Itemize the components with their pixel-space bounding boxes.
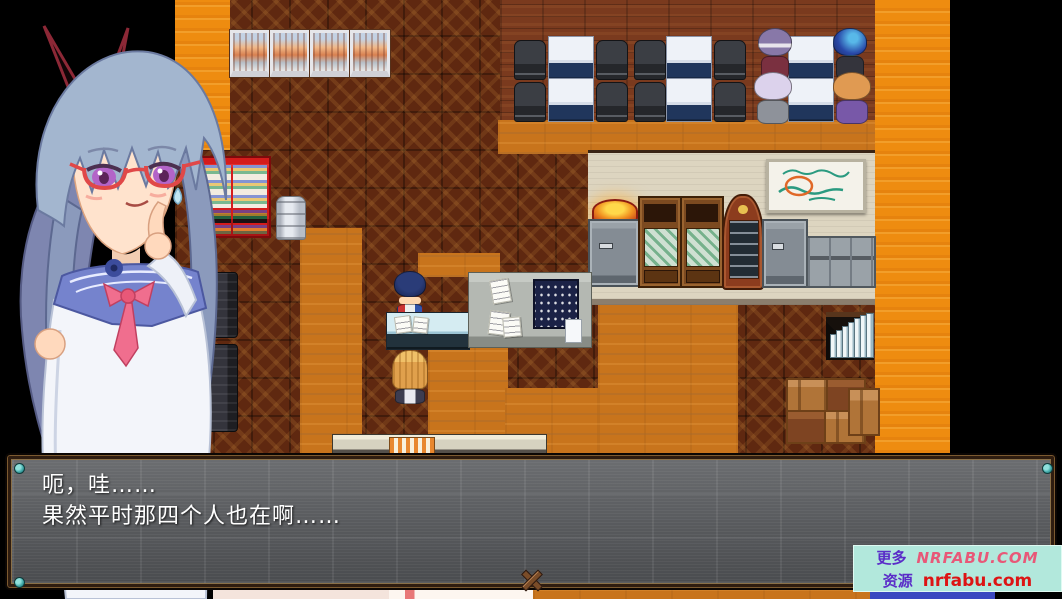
paper-sheet <box>412 316 429 333</box>
floor-orange-band <box>498 120 875 154</box>
office-room-wall <box>588 150 875 305</box>
game-map-viewport[interactable] <box>175 0 950 455</box>
cabinet-drawer <box>686 270 721 283</box>
window-icon <box>230 30 270 77</box>
watermark-row-1: 更多 NRFABU.COM <box>854 547 1061 568</box>
player-face <box>399 297 421 304</box>
continue-cursor-icon[interactable] <box>518 566 544 592</box>
sweat-drop <box>174 188 182 204</box>
npc-hair <box>833 72 871 100</box>
school-desk <box>548 78 594 122</box>
cabinet-drawer <box>644 270 679 283</box>
whiteboard-scribbles <box>769 162 863 210</box>
radiator-vent <box>389 437 435 454</box>
office-chair <box>514 40 546 80</box>
office-chair <box>514 82 546 122</box>
window-icon <box>270 30 310 77</box>
cardboard-box <box>786 410 826 444</box>
npc-body <box>757 100 789 124</box>
npc-body <box>395 389 425 403</box>
cabinet-crest <box>738 205 747 214</box>
stair-step <box>866 313 874 358</box>
npc-blonde-girl <box>392 350 428 402</box>
watermark-more-label: 更多 <box>876 547 906 568</box>
cabinet-pane <box>729 220 760 279</box>
watermark-row-2: 资源 nrfabu.com <box>854 570 1061 591</box>
cardboard-box <box>848 388 880 436</box>
cabinet-glass <box>644 228 679 267</box>
floor-orange-walkway <box>300 228 362 455</box>
npc-blue-hair <box>833 28 867 78</box>
whiteboard <box>766 159 866 213</box>
dialogue-line-2: 果然平时那四个人也在啊…… <box>42 501 1050 532</box>
reception-counter <box>468 272 592 348</box>
cardboard-box-pile <box>786 378 878 442</box>
watermark-blue-bar <box>870 592 995 599</box>
staircase <box>826 312 874 360</box>
office-chair <box>714 82 746 122</box>
floor-orange-patch <box>598 302 738 455</box>
game-screen: 呃，哇…… 果然平时那四个人也在啊…… 更多 NRFABU.COM 资源 nrf… <box>0 0 1062 599</box>
office-chair <box>596 40 628 80</box>
watermark-site-caps[interactable]: NRFABU.COM <box>916 549 1038 567</box>
school-desk <box>666 78 712 122</box>
school-desk <box>548 36 594 80</box>
wall-orange-right <box>875 0 950 455</box>
player-hair <box>394 271 426 297</box>
npc-orange-hair <box>833 72 871 122</box>
watermark-res-label: 资源 <box>883 570 913 591</box>
office-chair <box>634 82 666 122</box>
display-cabinet <box>680 196 724 288</box>
npc-purple-hair <box>758 28 792 78</box>
office-chair <box>596 82 628 122</box>
school-desk <box>788 78 834 122</box>
window-icon <box>310 30 350 77</box>
cardboard-box <box>786 378 828 412</box>
locker-row <box>806 236 876 288</box>
npc-hair <box>392 350 428 389</box>
cabinet-top <box>686 204 719 222</box>
trash-can <box>276 196 306 240</box>
vending-panel <box>233 165 267 234</box>
dialog-corner-screw <box>14 463 25 474</box>
office-chair <box>714 40 746 80</box>
paper-sheet <box>489 278 512 305</box>
npc-hair <box>758 28 792 56</box>
watermark-banner[interactable]: 更多 NRFABU.COM 资源 nrfabu.com <box>853 545 1062 592</box>
dialog-corner-screw <box>14 577 25 588</box>
npc-hair <box>754 72 792 100</box>
wall-switch <box>565 319 582 343</box>
safe-locker <box>762 219 808 288</box>
grandfather-cabinet <box>722 194 764 290</box>
player-boy <box>394 271 426 317</box>
office-chair <box>634 40 666 80</box>
paper-sheet <box>502 316 522 337</box>
npc-lavender-hair <box>754 72 792 122</box>
npc-body <box>836 100 868 124</box>
cabinet-top <box>644 204 677 222</box>
display-cabinet <box>638 196 682 288</box>
window-ledge <box>332 434 547 454</box>
paper-sheet <box>394 315 412 334</box>
glass-counter <box>386 312 470 350</box>
npc-hair <box>833 28 867 56</box>
watermark-site-lower[interactable]: nrfabu.com <box>923 571 1033 591</box>
dialogue-line-1: 呃，哇…… <box>42 470 1050 501</box>
school-desk <box>666 36 712 80</box>
school-desk <box>788 36 834 80</box>
window-icon <box>350 30 390 77</box>
safe-locker <box>588 219 640 287</box>
cabinet-glass <box>686 228 721 267</box>
dialog-corner-screw <box>1042 463 1053 474</box>
